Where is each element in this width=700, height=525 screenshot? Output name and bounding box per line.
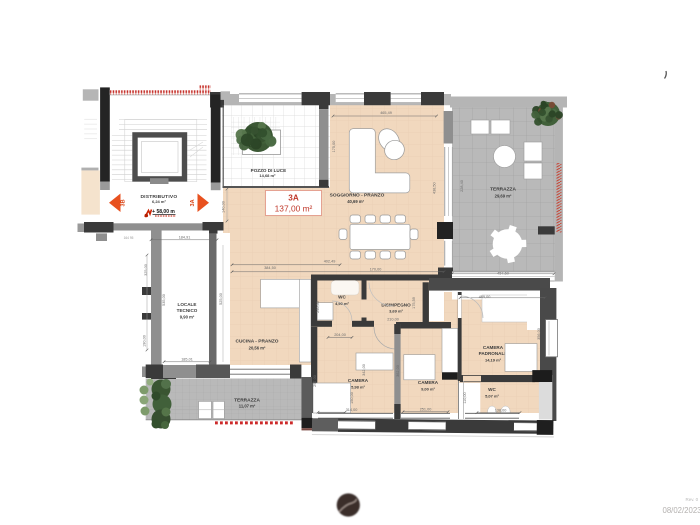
svg-text:150,00: 150,00 — [350, 392, 354, 404]
svg-text:314,00: 314,00 — [346, 408, 358, 412]
svg-text:3,69 m²: 3,69 m² — [389, 309, 403, 314]
svg-text:190,00: 190,00 — [142, 335, 146, 347]
svg-text:356,00: 356,00 — [537, 328, 541, 340]
svg-text:CUCINA - PRANZO: CUCINA - PRANZO — [236, 339, 279, 345]
svg-text:LOCALE: LOCALE — [178, 302, 197, 307]
svg-text:184,91: 184,91 — [179, 236, 191, 240]
svg-text:170,00: 170,00 — [370, 268, 382, 272]
svg-text:3A: 3A — [288, 194, 299, 203]
svg-text:175,59: 175,59 — [412, 297, 416, 309]
svg-text:11,07 m²: 11,07 m² — [239, 404, 256, 409]
svg-text:SOGGIORNO - PRANZO: SOGGIORNO - PRANZO — [330, 193, 385, 199]
svg-text:3B: 3B — [121, 199, 127, 206]
svg-text:204,00: 204,00 — [334, 333, 346, 337]
svg-text:362,00: 362,00 — [396, 365, 400, 377]
svg-text:20,56 m²: 20,56 m² — [249, 345, 266, 350]
svg-text:CAMERA: CAMERA — [483, 345, 504, 350]
svg-text:CAMERA: CAMERA — [348, 378, 369, 383]
svg-text:110,00: 110,00 — [463, 392, 467, 403]
svg-text:5,07 m²: 5,07 m² — [485, 394, 499, 399]
svg-text:138,00: 138,00 — [495, 408, 507, 412]
svg-text:5,98 m²: 5,98 m² — [351, 385, 365, 390]
svg-text:WC: WC — [338, 295, 346, 300]
svg-text:29,69 m²: 29,69 m² — [495, 193, 512, 198]
svg-text:TERRAZZA: TERRAZZA — [490, 187, 516, 193]
svg-text:40,69 m²: 40,69 m² — [347, 199, 364, 204]
svg-text:535,00: 535,00 — [162, 294, 166, 306]
svg-text:WC: WC — [488, 387, 496, 392]
svg-text:CAMERA: CAMERA — [418, 380, 439, 385]
svg-text:210,00: 210,00 — [387, 317, 399, 321]
svg-text:175,00: 175,00 — [332, 141, 336, 153]
svg-text:342,00: 342,00 — [362, 364, 366, 376]
svg-text:140,00: 140,00 — [222, 201, 226, 213]
svg-text:6,24 m²: 6,24 m² — [152, 199, 166, 204]
svg-text:251,00: 251,00 — [420, 408, 432, 412]
svg-text:14,19 m²: 14,19 m² — [485, 358, 502, 363]
svg-text:457,60: 457,60 — [497, 272, 509, 276]
svg-text:525,00: 525,00 — [219, 293, 223, 305]
svg-text:137,00 m²: 137,00 m² — [275, 204, 313, 214]
svg-text:164 95: 164 95 — [124, 236, 134, 240]
svg-text:465,49: 465,49 — [380, 111, 392, 115]
svg-text:489,00: 489,00 — [479, 295, 491, 299]
svg-text:POZZO DI LUCE: POZZO DI LUCE — [251, 168, 286, 173]
svg-text:14,68 m²: 14,68 m² — [259, 173, 276, 178]
svg-text:Rev. 0: Rev. 0 — [686, 497, 699, 502]
svg-text:297,00: 297,00 — [313, 375, 317, 387]
svg-text:402,49: 402,49 — [324, 260, 336, 264]
svg-text:PADRONALE: PADRONALE — [479, 351, 508, 356]
svg-text:9,90 m²: 9,90 m² — [180, 315, 195, 320]
svg-text:9,00 m²: 9,00 m² — [421, 387, 435, 392]
svg-text:08/02/2023: 08/02/2023 — [663, 506, 700, 515]
svg-text:TECNICO: TECNICO — [177, 308, 198, 313]
svg-text:185,01: 185,01 — [181, 358, 193, 362]
svg-text:384,50: 384,50 — [264, 266, 276, 270]
svg-text:3A: 3A — [190, 199, 196, 206]
svg-text:228,40: 228,40 — [460, 180, 464, 192]
svg-text:438,50: 438,50 — [433, 182, 437, 194]
svg-text:240,50: 240,50 — [316, 301, 320, 313]
